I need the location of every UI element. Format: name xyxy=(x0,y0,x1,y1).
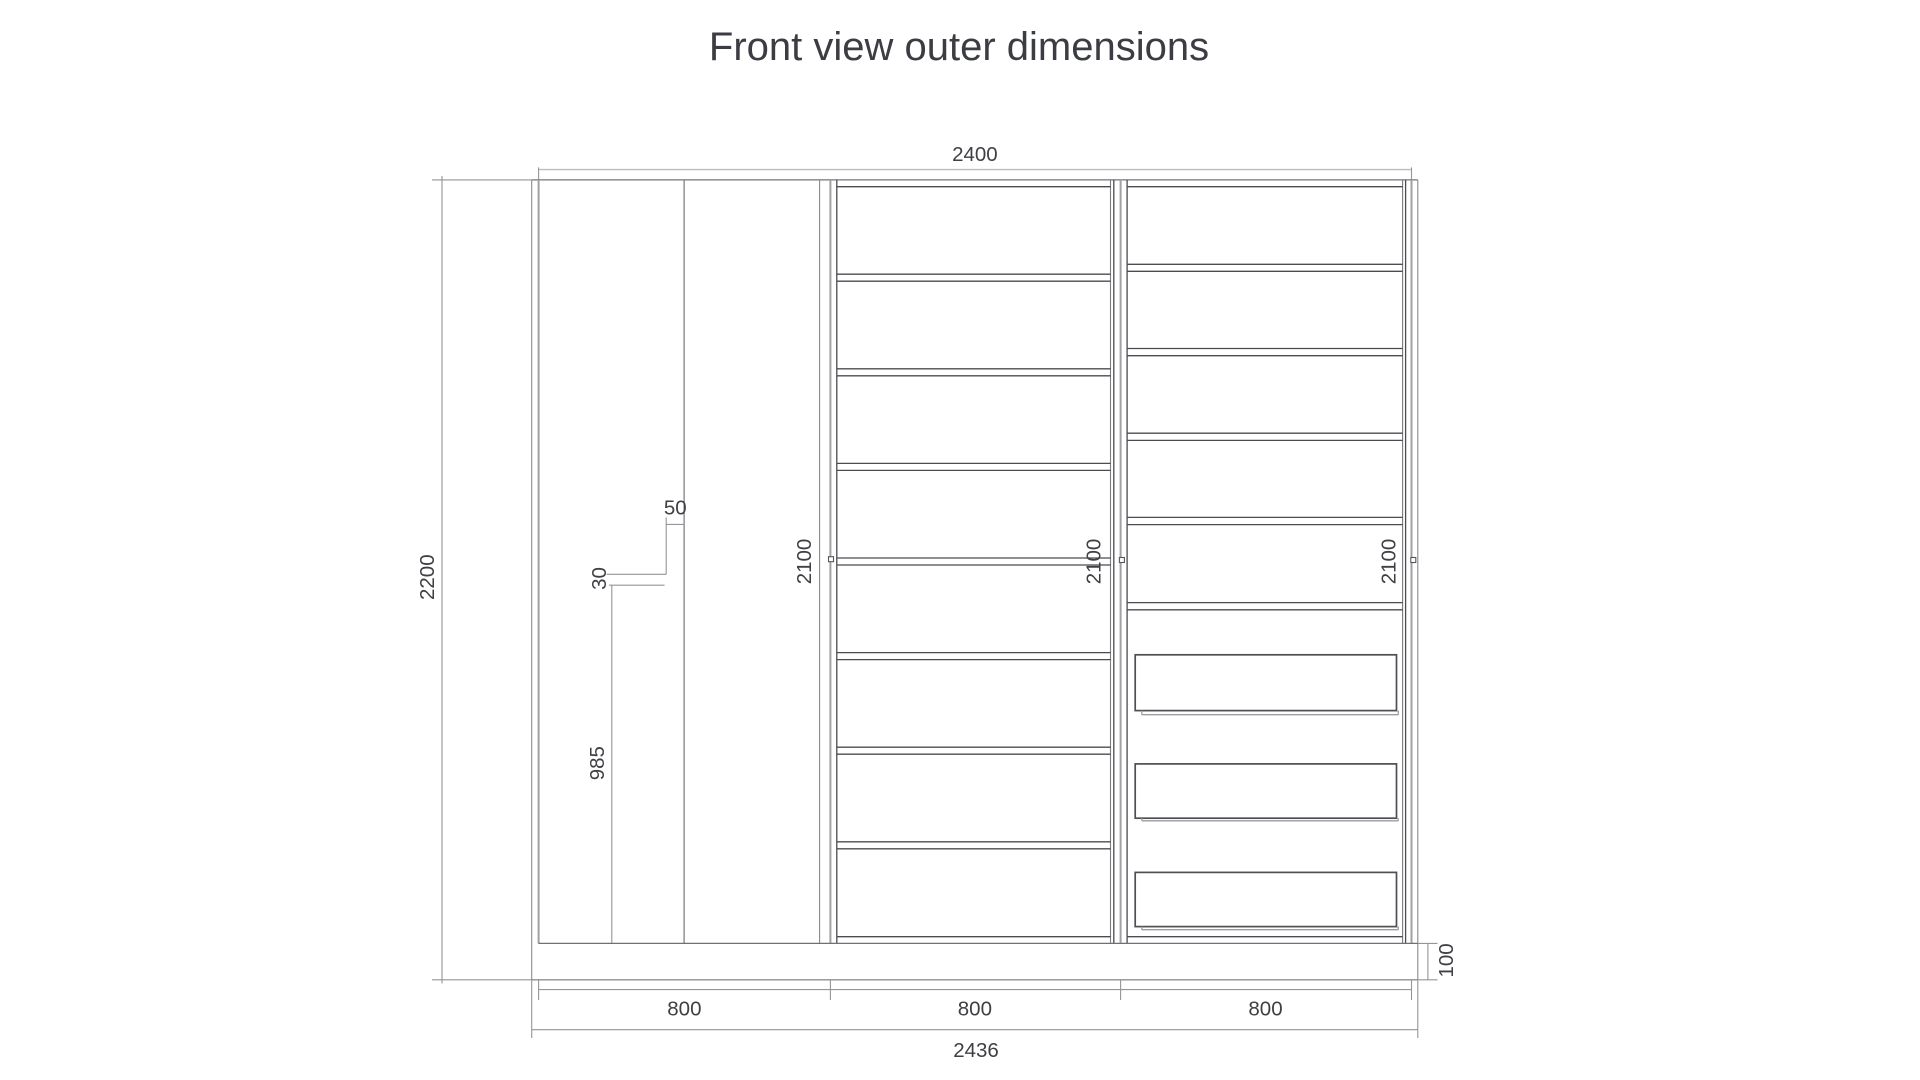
svg-text:50: 50 xyxy=(664,496,687,519)
svg-text:30: 30 xyxy=(588,567,611,590)
svg-text:985: 985 xyxy=(586,746,609,780)
svg-text:2400: 2400 xyxy=(952,143,998,166)
svg-text:2200: 2200 xyxy=(416,554,439,600)
svg-text:Front view outer dimensions: Front view outer dimensions xyxy=(709,25,1209,69)
svg-text:2100: 2100 xyxy=(1378,539,1401,585)
svg-text:100: 100 xyxy=(1435,943,1458,977)
svg-text:800: 800 xyxy=(958,998,992,1021)
svg-text:800: 800 xyxy=(667,998,701,1021)
svg-text:2100: 2100 xyxy=(793,539,816,585)
svg-text:800: 800 xyxy=(1248,998,1282,1021)
svg-text:2436: 2436 xyxy=(953,1039,999,1062)
svg-text:2100: 2100 xyxy=(1083,539,1106,585)
